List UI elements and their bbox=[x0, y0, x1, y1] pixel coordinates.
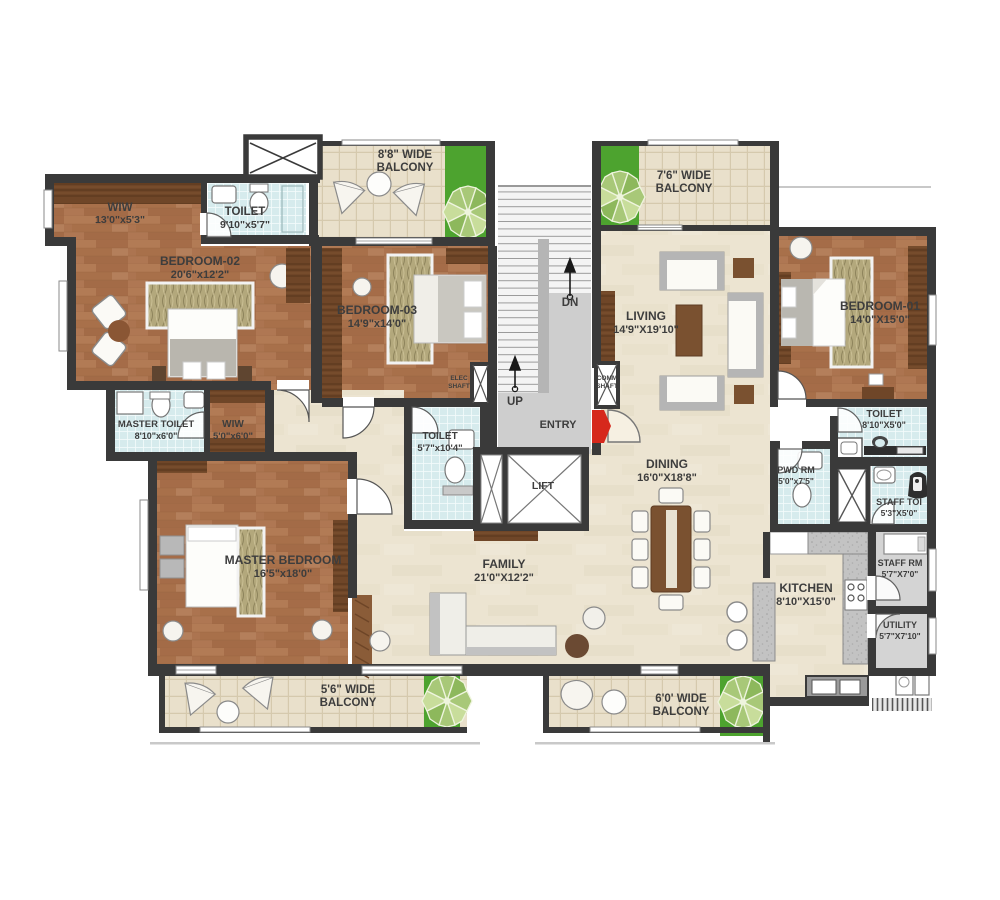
svg-text:TOILET: TOILET bbox=[866, 409, 901, 420]
svg-text:MASTER BEDROOM: MASTER BEDROOM bbox=[225, 553, 342, 567]
svg-text:BALCONY: BALCONY bbox=[656, 183, 713, 195]
svg-text:21'0"X12'2": 21'0"X12'2" bbox=[474, 572, 534, 584]
svg-text:FAMILY: FAMILY bbox=[483, 557, 526, 571]
svg-text:20'6"x12'2": 20'6"x12'2" bbox=[171, 269, 230, 281]
svg-text:TOILET: TOILET bbox=[225, 206, 266, 218]
svg-text:MASTER TOILET: MASTER TOILET bbox=[118, 419, 195, 430]
svg-text:COMM: COMM bbox=[597, 375, 618, 382]
svg-text:BALCONY: BALCONY bbox=[320, 697, 377, 709]
svg-text:5'7"X7'0": 5'7"X7'0" bbox=[882, 569, 919, 579]
svg-text:WIW: WIW bbox=[108, 202, 133, 214]
svg-text:STAFF TOI: STAFF TOI bbox=[876, 497, 922, 507]
svg-text:BEDROOM-02: BEDROOM-02 bbox=[160, 254, 240, 268]
svg-text:8'10"x6'0": 8'10"x6'0" bbox=[135, 431, 178, 441]
svg-text:16'0"X18'8": 16'0"X18'8" bbox=[637, 472, 697, 484]
svg-text:13'0"x5'3": 13'0"x5'3" bbox=[95, 214, 145, 226]
svg-text:5'0"x7'5": 5'0"x7'5" bbox=[778, 476, 814, 486]
svg-text:5'0"x6'0": 5'0"x6'0" bbox=[213, 431, 253, 442]
svg-text:8'10"X15'0": 8'10"X15'0" bbox=[776, 596, 836, 608]
svg-text:ELEC: ELEC bbox=[450, 375, 468, 382]
svg-text:8'10"X5'0": 8'10"X5'0" bbox=[862, 420, 906, 430]
svg-text:BALCONY: BALCONY bbox=[377, 162, 434, 174]
svg-text:14'9"X19'10": 14'9"X19'10" bbox=[613, 324, 679, 336]
svg-text:9'10"x5'7": 9'10"x5'7" bbox=[220, 219, 270, 231]
svg-text:DN: DN bbox=[562, 297, 579, 309]
svg-text:ENTRY: ENTRY bbox=[540, 419, 578, 431]
svg-text:DINING: DINING bbox=[646, 457, 688, 471]
svg-text:5'7"x10'4": 5'7"x10'4" bbox=[417, 443, 462, 454]
svg-text:5'6" WIDE: 5'6" WIDE bbox=[321, 684, 376, 696]
svg-text:BEDROOM-01: BEDROOM-01 bbox=[840, 299, 920, 313]
svg-text:UP: UP bbox=[507, 396, 523, 408]
svg-text:7'6" WIDE: 7'6" WIDE bbox=[657, 170, 712, 182]
svg-text:WIW: WIW bbox=[222, 419, 244, 430]
svg-text:UTILITY: UTILITY bbox=[883, 620, 917, 630]
svg-text:LIFT: LIFT bbox=[532, 480, 555, 492]
svg-text:TOILET: TOILET bbox=[422, 431, 457, 442]
svg-text:5'3"X5'0": 5'3"X5'0" bbox=[881, 508, 918, 518]
svg-text:14'9"x14'0": 14'9"x14'0" bbox=[348, 318, 407, 330]
svg-text:BALCONY: BALCONY bbox=[653, 706, 710, 718]
svg-text:16'5"x18'0": 16'5"x18'0" bbox=[254, 568, 313, 580]
svg-text:5'7"X7'10": 5'7"X7'10" bbox=[879, 631, 920, 641]
svg-text:SHAFT: SHAFT bbox=[596, 383, 618, 390]
svg-text:BEDROOM-03: BEDROOM-03 bbox=[337, 303, 417, 317]
svg-text:KITCHEN: KITCHEN bbox=[779, 581, 832, 595]
svg-text:14'0"X15'0": 14'0"X15'0" bbox=[850, 314, 910, 326]
svg-text:LIVING: LIVING bbox=[626, 309, 666, 323]
svg-text:SHAFT: SHAFT bbox=[448, 383, 470, 390]
svg-text:STAFF RM: STAFF RM bbox=[878, 558, 923, 568]
svg-text:8'8" WIDE: 8'8" WIDE bbox=[378, 149, 433, 161]
svg-text:PWD RM: PWD RM bbox=[777, 465, 815, 475]
svg-text:6'0' WIDE: 6'0' WIDE bbox=[655, 693, 707, 705]
